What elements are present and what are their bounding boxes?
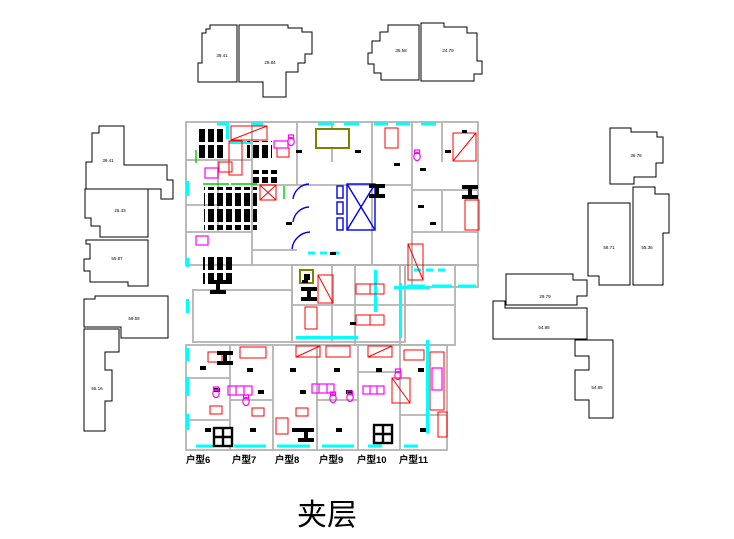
door-swing-arcs [292,184,310,249]
unit-type-label: 户型11 [398,454,429,466]
unit-outline [506,274,587,305]
area-label: 55.87 [111,256,123,261]
area-label: 59.59 [128,316,140,321]
area-label: 35.58 [395,48,407,53]
unit-type-labels: 户型6 户型7 户型8 户型9 户型10 户型11 [185,454,429,466]
unit-type-label: 户型7 [231,454,256,466]
area-label: 39.41 [102,158,114,163]
unit-outline [633,187,669,285]
unit-outline [86,126,173,199]
area-label: 36.78 [630,153,642,158]
unit-outline [588,203,630,285]
unit-outline [84,240,148,286]
elevator-shaft [337,184,375,230]
unit-type-label: 户型9 [318,454,343,466]
area-label: 55.36 [641,245,653,250]
area-label: 29.84 [264,60,276,65]
floorplan-canvas: 39.41 29.84 35.58 24.79 39.41 25.43 55.8… [0,0,734,539]
unit-type-label: 户型10 [356,454,387,466]
unit-type-label: 户型8 [274,454,299,466]
unit-outline [575,340,613,418]
area-label: 54.85 [591,385,603,390]
cabinet-blocks [198,128,279,284]
area-label: 58.71 [603,245,615,250]
unit-outline [85,189,148,237]
area-label: 54.88 [538,325,550,330]
area-label: 24.79 [442,48,454,53]
skylight [300,129,349,283]
area-label: 55.16 [91,386,103,391]
drawing-title: 夹层 [297,499,357,532]
unit-outline [493,301,587,339]
area-label: 25.43 [114,208,126,213]
unit-outline [368,25,419,80]
area-label: 39.41 [216,53,228,58]
unit-outline [84,329,119,431]
area-label: 29.79 [539,294,551,299]
column-core [304,274,310,280]
unit-type-label: 户型6 [185,454,210,466]
